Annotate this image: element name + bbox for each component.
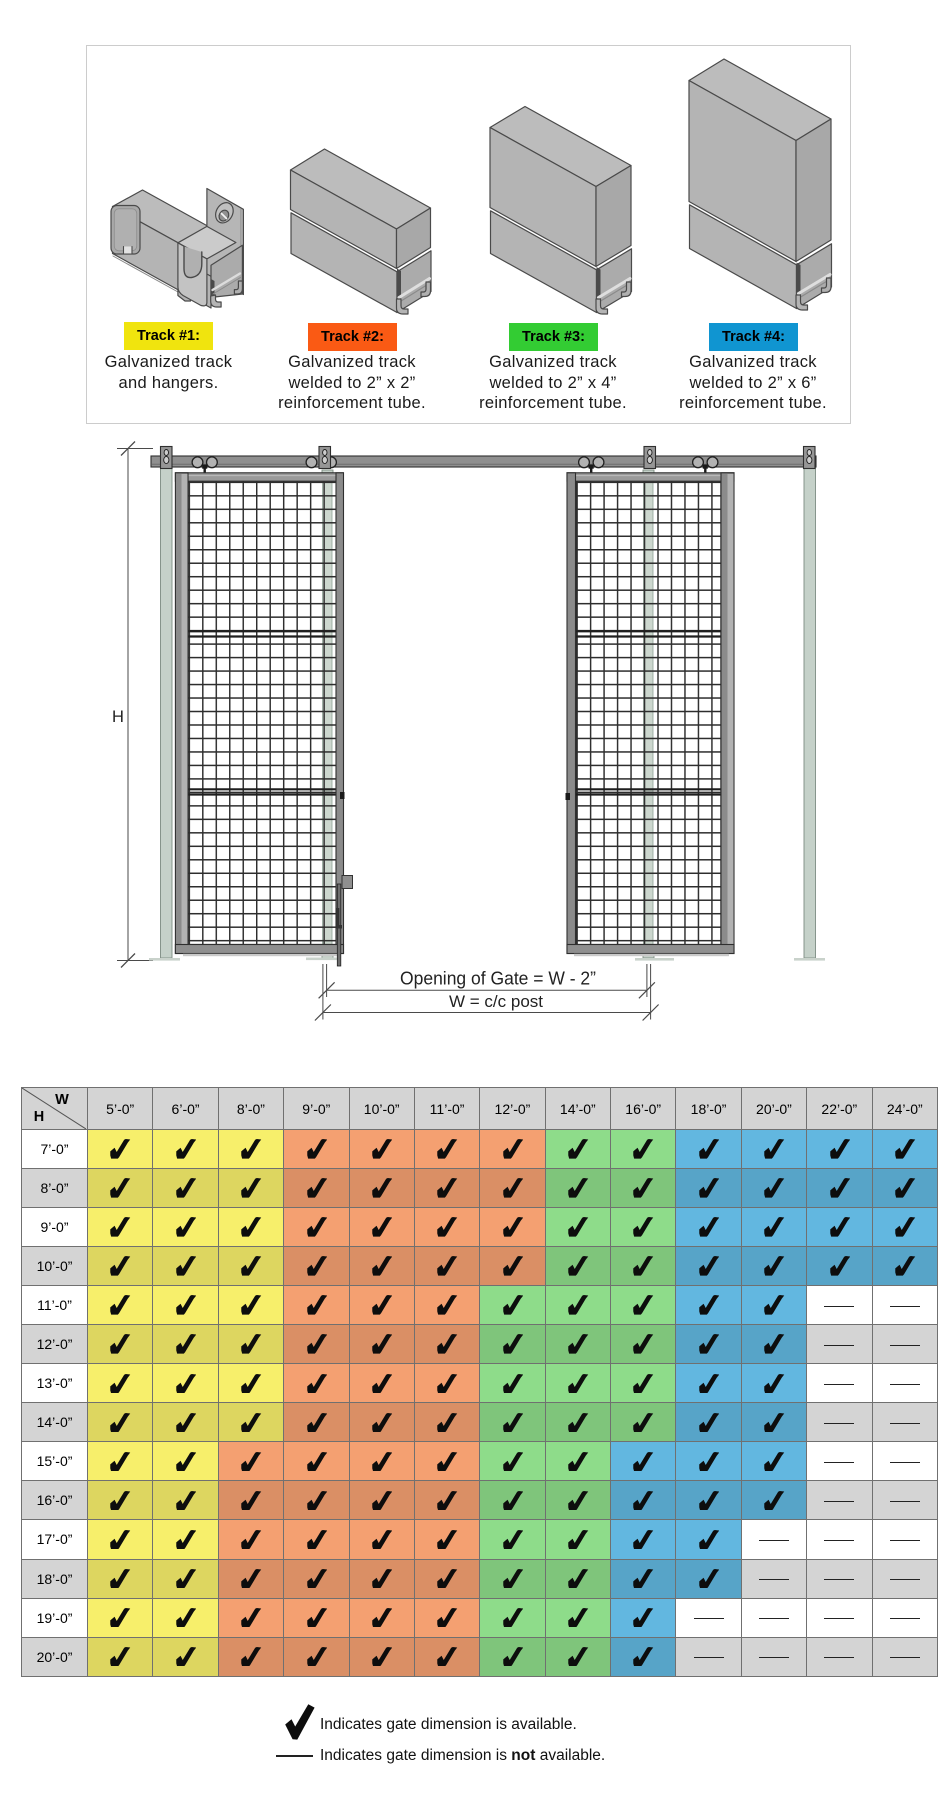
svg-text:W: W — [55, 1092, 69, 1108]
svg-text:H: H — [34, 1109, 44, 1125]
svg-text:H: H — [112, 708, 124, 726]
svg-text:Opening of Gate = W - 2”: Opening of Gate = W - 2” — [400, 969, 596, 989]
svg-text:W = c/c post: W = c/c post — [449, 992, 543, 1011]
